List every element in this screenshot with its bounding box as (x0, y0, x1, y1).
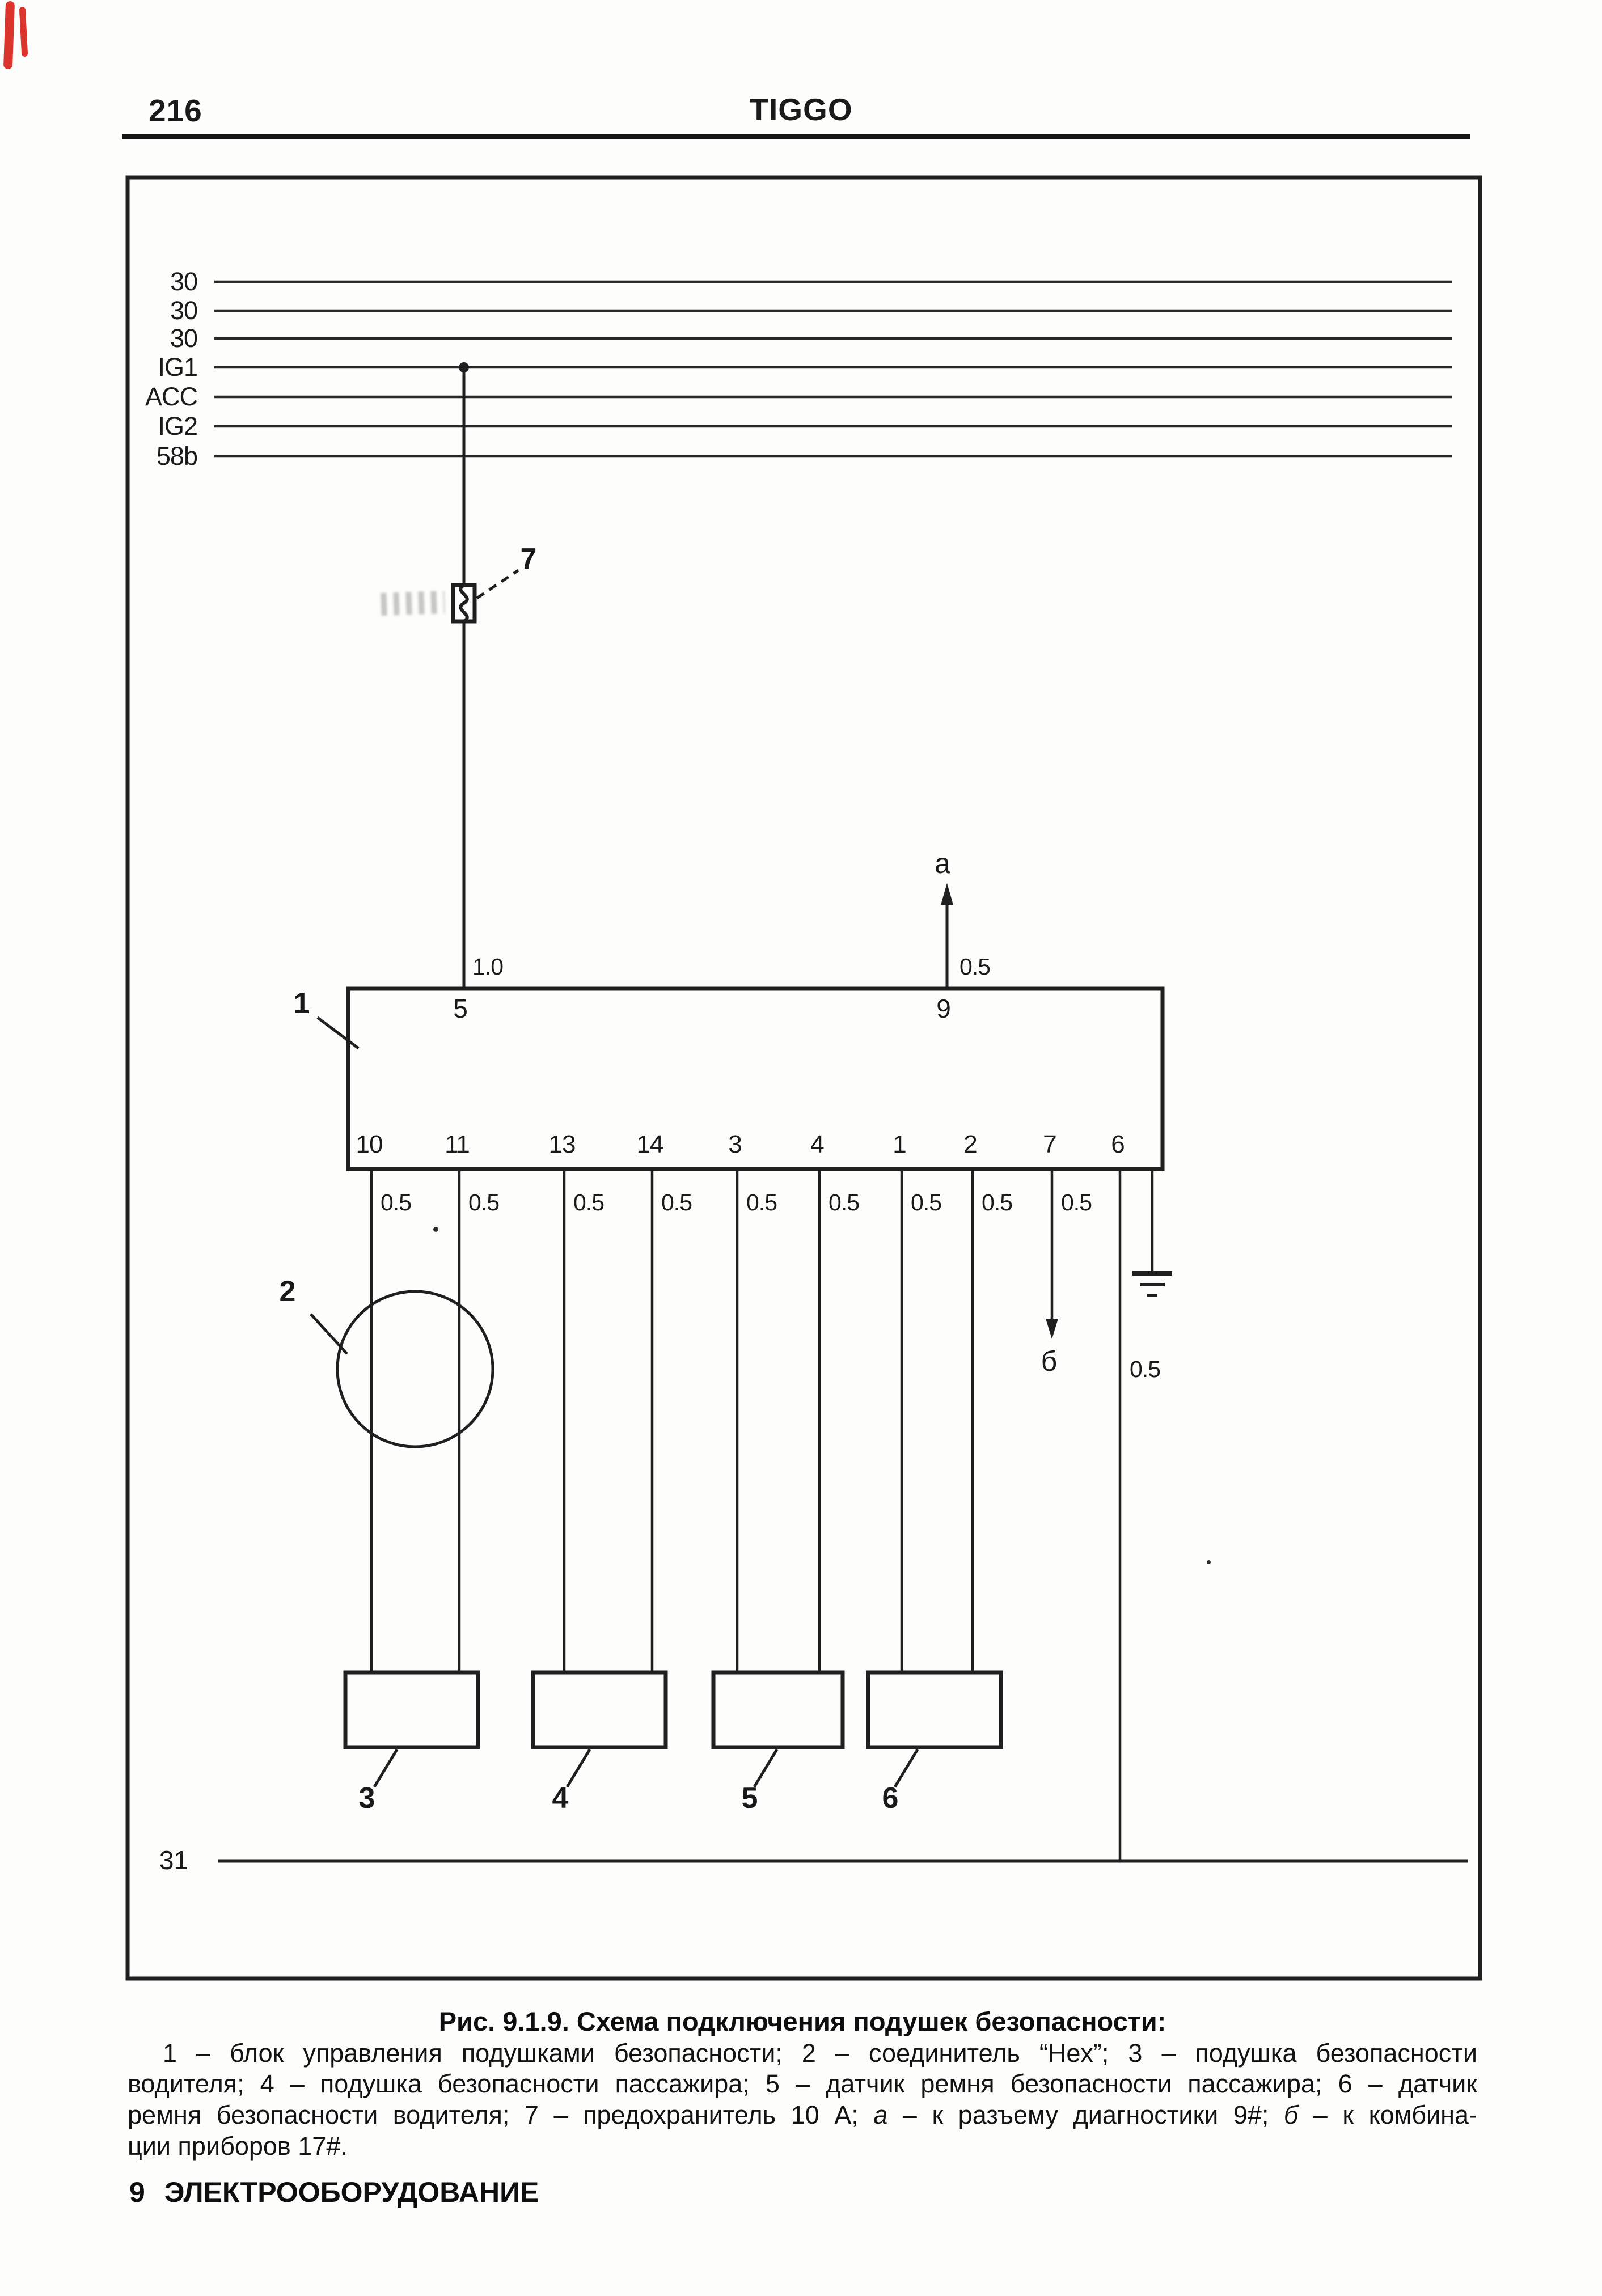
ground-bus-label: 31 (136, 1845, 188, 1875)
component-callout-leaders (374, 1749, 918, 1787)
block-pin-4: 4 (792, 1130, 842, 1159)
section-footer: 9ЭЛЕКТРООБОРУДОВАНИЕ (129, 2176, 539, 2209)
block-pin-3: 3 (710, 1130, 760, 1159)
block-pin-6: 6 (1093, 1130, 1143, 1159)
wire-gauge-11: 0.5 (468, 1189, 499, 1216)
fuse-callout-leader (477, 570, 518, 598)
wire-gauge-14: 0.5 (661, 1189, 692, 1216)
arrow-a-icon (941, 883, 953, 989)
wire-gauge-13: 0.5 (573, 1189, 604, 1216)
component-boxes (345, 1672, 1001, 1747)
block-pin-13: 13 (537, 1130, 587, 1159)
bus-label-58b: 58b (85, 442, 197, 471)
figure-caption-title: Рис. 9.1.9. Схема подключения подушек бе… (128, 2006, 1477, 2037)
legend-line3-text: – к разъему диагностики 9#; (887, 2100, 1284, 2129)
connector-circle (337, 1291, 493, 1447)
block-pin-1: 1 (874, 1130, 924, 1159)
bus-label-30-1: 30 (85, 267, 197, 296)
wire-gauge-7: 0.5 (1061, 1189, 1092, 1216)
fuse-icon (453, 585, 475, 621)
figure-legend-line-3: ремня безопасности водителя; 7 – предохр… (128, 2100, 1477, 2130)
block-pin-5: 5 (445, 993, 476, 1024)
wire-gauge-3: 0.5 (746, 1189, 777, 1216)
section-number: 9 (129, 2176, 145, 2208)
legend-line3-text: ремня безопасности водителя; 7 – предохр… (128, 2100, 873, 2129)
connector-callout-leader (311, 1314, 347, 1354)
power-bus-lines (214, 282, 1452, 456)
passenger-belt-sensor-callout: 5 (730, 1781, 770, 1815)
arrow-b-icon (1046, 1319, 1058, 1339)
passenger-airbag-callout: 4 (540, 1781, 580, 1815)
driver-belt-sensor-callout: 6 (870, 1781, 910, 1815)
figure-legend-line-4: ции приборов 17#. (128, 2132, 1477, 2161)
arrow-a-label: a (927, 847, 958, 880)
block-pin-10: 10 (344, 1130, 394, 1159)
wire-gauge-10: 0.5 (381, 1189, 411, 1216)
manual-page: 216 TIGGO (0, 0, 1602, 2296)
wire-gauge-6: 0.5 (1130, 1356, 1160, 1383)
block-pin-9: 9 (928, 993, 959, 1024)
scan-speck (1207, 1560, 1211, 1564)
figure-legend-line-1: 1 – блок управления подушками безопаснос… (128, 2039, 1477, 2068)
pin-wires (371, 1169, 1152, 1861)
block-pin-14: 14 (625, 1130, 675, 1159)
arrow-b-label: б (1034, 1345, 1064, 1378)
ground-icon (1132, 1273, 1172, 1295)
bus-label-ig2: IG2 (85, 412, 197, 441)
wire-gauge-pin9: 0.5 (959, 954, 990, 980)
wire-gauge-1: 0.5 (911, 1189, 941, 1216)
block-pin-2: 2 (945, 1130, 995, 1159)
legend-line3-text: – к комбина- (1298, 2100, 1477, 2129)
fuse-callout: 7 (513, 542, 544, 576)
wire-gauge-2: 0.5 (982, 1189, 1012, 1216)
block-pin-7: 7 (1025, 1130, 1075, 1159)
section-title: ЭЛЕКТРООБОРУДОВАНИЕ (164, 2176, 539, 2208)
figure-legend-line-2: водителя; 4 – подушка безопасности пасса… (128, 2069, 1477, 2099)
scan-speck (433, 1227, 438, 1232)
block-callout: 1 (286, 986, 317, 1020)
connector-callout: 2 (272, 1274, 303, 1308)
legend-arrow-a-ref: а (873, 2100, 887, 2129)
wire-gauge-4: 0.5 (829, 1189, 859, 1216)
driver-airbag-callout: 3 (347, 1781, 387, 1815)
block-pin-11: 11 (432, 1130, 482, 1159)
print-bleed-artifact (381, 591, 445, 616)
bus-label-30-3: 30 (85, 324, 197, 353)
legend-arrow-b-ref: б (1284, 2100, 1298, 2129)
bus-label-30-2: 30 (85, 296, 197, 325)
bus-label-ig1: IG1 (85, 353, 197, 382)
bus-label-acc: ACC (85, 382, 197, 412)
wire-gauge-pin5: 1.0 (472, 954, 503, 980)
